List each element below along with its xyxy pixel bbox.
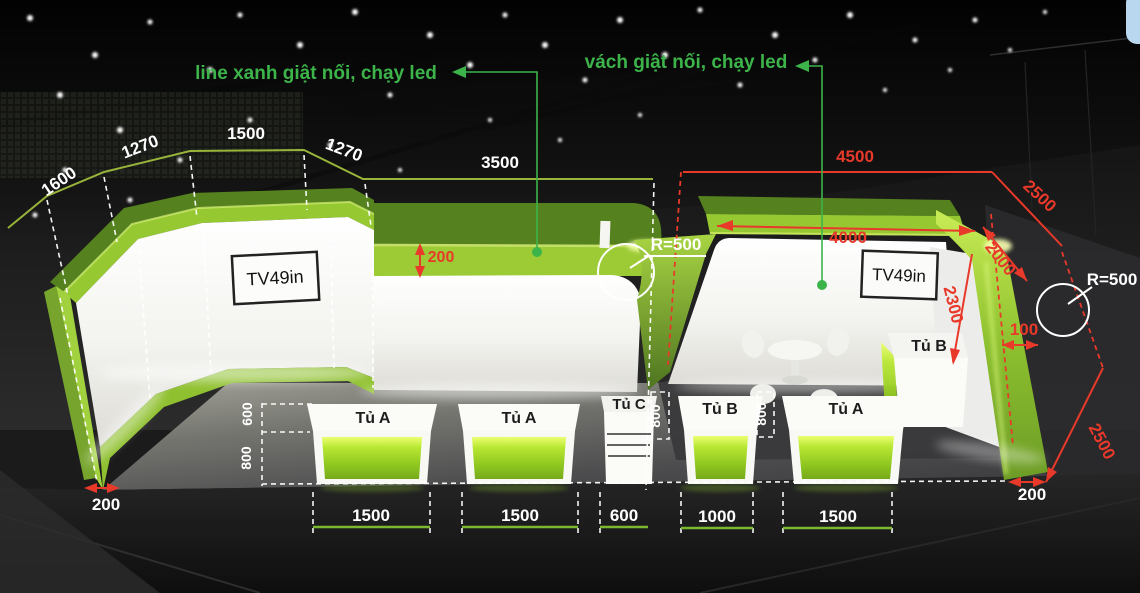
dim-800-height: 800 bbox=[238, 446, 254, 470]
dim-200-left: 200 bbox=[92, 495, 120, 514]
dim-w-a1: 1500 bbox=[352, 506, 390, 525]
dim-4000: 4000 bbox=[829, 228, 867, 247]
dim-200-right: 200 bbox=[1018, 485, 1046, 504]
annotation-line-led: line xanh giật nối, chạy led bbox=[195, 63, 437, 84]
radius-left-label: R=500 bbox=[651, 235, 702, 254]
dim-600-depth: 600 bbox=[239, 402, 255, 426]
radius-right-label: R=500 bbox=[1087, 270, 1138, 289]
cabinet-a2-label: Tủ A bbox=[502, 410, 537, 427]
cabinet-b-side-label: Tủ B bbox=[911, 338, 947, 355]
tv-screen-left: TV49in bbox=[232, 252, 319, 304]
annotation-wall-led: vách giật nối, chạy led bbox=[585, 52, 788, 73]
dim-100: 100 bbox=[1010, 320, 1038, 339]
cabinet-tu-b-1: Tủ B bbox=[678, 396, 763, 492]
cabinet-c-label: Tủ C bbox=[612, 396, 645, 413]
booth-design-rendering: TV49in TV49in bbox=[0, 0, 1140, 593]
dim-w-c: 600 bbox=[610, 506, 638, 525]
cabinet-tu-a-2: Tủ A bbox=[458, 404, 580, 492]
dim-3500: 3500 bbox=[481, 153, 519, 172]
tv-left-label: TV49in bbox=[246, 267, 304, 290]
tv-right-label: TV49in bbox=[872, 265, 927, 286]
dim-800-c: 800 bbox=[647, 404, 663, 428]
cabinet-tu-a-3: Tủ A bbox=[782, 396, 910, 492]
dim-w-a2: 1500 bbox=[501, 506, 539, 525]
cabinet-b1-label: Tủ B bbox=[702, 401, 738, 418]
dim-w-b1: 1000 bbox=[698, 507, 736, 526]
dim-200-band: 200 bbox=[428, 249, 455, 266]
dim-1500-top: 1500 bbox=[227, 124, 265, 143]
tv-screen-right: TV49in bbox=[861, 251, 938, 300]
dim-w-a3: 1500 bbox=[819, 507, 857, 526]
dim-4500: 4500 bbox=[836, 147, 874, 166]
cropped-blue-bubble bbox=[1126, 0, 1140, 44]
dim-800-b: 800 bbox=[753, 402, 769, 426]
cabinet-tu-a-1: Tủ A bbox=[307, 404, 437, 492]
cabinet-a1-label: Tủ A bbox=[356, 410, 391, 427]
cabinet-a3-label: Tủ A bbox=[829, 401, 864, 418]
